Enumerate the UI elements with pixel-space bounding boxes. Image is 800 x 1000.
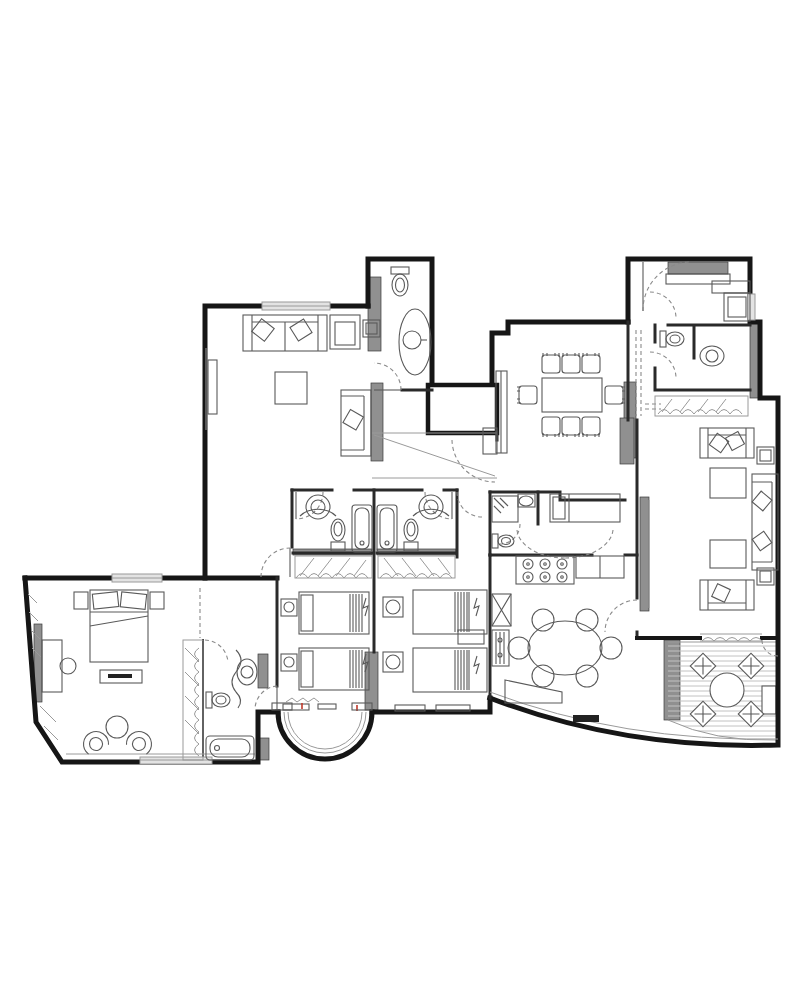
- entry-window: [748, 294, 755, 320]
- side-table: [458, 630, 484, 644]
- chaise-sofa: [752, 474, 778, 570]
- shower: [492, 496, 518, 522]
- angled-island: [505, 680, 562, 703]
- kitchen: [492, 556, 624, 722]
- chair: [600, 637, 622, 659]
- planter: [762, 686, 776, 714]
- sitting-corner: [79, 716, 155, 755]
- wall-cabinet: [666, 274, 730, 284]
- living-room: [206, 315, 380, 456]
- dining-room: [483, 353, 625, 454]
- kids-bathroom-left: [300, 495, 372, 552]
- family-room: [649, 428, 778, 641]
- chair: [532, 665, 554, 687]
- toilet: [331, 519, 345, 551]
- column: [620, 418, 634, 464]
- chair: [508, 637, 530, 659]
- floor-plan-page: [0, 0, 800, 1000]
- terrace-chair: [690, 653, 715, 678]
- master-wardrobe: [183, 640, 203, 760]
- bathtub: [377, 505, 397, 552]
- nightstand-lamp: [383, 652, 403, 672]
- tv-cabinet: [206, 348, 217, 430]
- toilet-bowl: [666, 332, 684, 346]
- pillow: [301, 595, 313, 631]
- bathtub: [206, 736, 254, 760]
- curtain: [702, 638, 762, 642]
- terrace: [668, 642, 776, 740]
- toilet-tank: [660, 331, 666, 347]
- chair: [576, 665, 598, 687]
- side-table: [757, 568, 774, 585]
- coffee-table: [710, 540, 746, 568]
- round-table: [106, 716, 128, 738]
- sofa: [243, 315, 327, 351]
- armchair: [125, 727, 156, 755]
- entry-cabinet: [668, 262, 728, 274]
- counter: [576, 556, 624, 578]
- sofa-top: [700, 428, 754, 458]
- vanity-sink: [399, 309, 431, 375]
- pillow: [752, 531, 771, 550]
- coffee-table: [710, 468, 746, 498]
- nightstand-lamp: [281, 654, 297, 671]
- pillow: [712, 584, 731, 603]
- bench: [100, 670, 142, 683]
- single-bed: [413, 648, 487, 692]
- column: [365, 652, 378, 710]
- chair: [532, 609, 554, 631]
- pillow: [301, 651, 313, 687]
- chair: [576, 609, 598, 631]
- sofa-bottom: [700, 580, 754, 610]
- chaise-longue: [341, 390, 371, 456]
- dining-chairs: [517, 353, 625, 437]
- coffee-table: [275, 372, 307, 404]
- dashed-partition: [636, 330, 641, 416]
- six-burner-stove: [516, 556, 574, 584]
- maid-room: [492, 494, 620, 548]
- entry-wardrobe: [655, 396, 748, 416]
- terrace-table: [710, 673, 744, 707]
- nightstand-lamp: [383, 597, 403, 617]
- side-table: [757, 447, 774, 464]
- hallway-closet: [372, 433, 497, 478]
- nightstand: [74, 592, 88, 609]
- armchair: [330, 315, 360, 349]
- column: [371, 383, 383, 461]
- family-tv-cabinet: [640, 497, 649, 611]
- vanity-counter: [413, 509, 449, 516]
- floor-plan-drawing: [0, 0, 800, 1000]
- toilet: [492, 534, 514, 548]
- pillow: [752, 491, 772, 511]
- toilet: [206, 692, 230, 708]
- dishwasher: [492, 630, 509, 666]
- nightstand: [150, 592, 164, 609]
- armchair: [79, 727, 110, 755]
- dining-table: [542, 378, 602, 412]
- toilet: [391, 267, 409, 296]
- pillow: [709, 433, 728, 452]
- entry-hall: [655, 274, 750, 416]
- bay-window-wall: [278, 712, 372, 759]
- pillow: [343, 409, 363, 429]
- kitchen-sink: [492, 594, 511, 626]
- single-bed: [299, 592, 369, 634]
- master-bedroom: [28, 590, 203, 760]
- column: [664, 640, 680, 720]
- window-sill: [283, 704, 309, 710]
- counter-edge: [232, 650, 241, 708]
- console-counter: [712, 281, 750, 321]
- guest-bathroom: [391, 267, 431, 375]
- master-bathroom: [206, 650, 257, 760]
- bedroom-left: [281, 592, 369, 711]
- window-sill: [318, 704, 336, 709]
- structural-core: [428, 385, 497, 433]
- kids-bathroom-right: [377, 495, 449, 552]
- single-bed: [299, 648, 369, 690]
- sink: [518, 494, 535, 507]
- terrace-chair: [738, 701, 763, 726]
- toilet: [404, 519, 418, 551]
- breakfast-table: [508, 609, 622, 687]
- vanity-sink: [237, 659, 257, 685]
- desk-and-chair: [42, 640, 76, 692]
- nightstand-lamp: [281, 599, 297, 616]
- dark-sill: [573, 715, 599, 722]
- terrace-chair: [690, 701, 715, 726]
- pillow: [120, 592, 146, 610]
- radiator-zigzag: [286, 698, 319, 702]
- round-sink: [419, 495, 443, 519]
- single-bed: [413, 590, 487, 634]
- double-bed: [90, 590, 148, 662]
- terrace-chair: [738, 653, 763, 678]
- bedroom-right: [383, 590, 487, 711]
- sink: [700, 346, 724, 366]
- vanity-counter: [300, 509, 336, 516]
- column: [258, 654, 268, 688]
- pillow: [92, 592, 118, 610]
- bathtub: [352, 505, 372, 552]
